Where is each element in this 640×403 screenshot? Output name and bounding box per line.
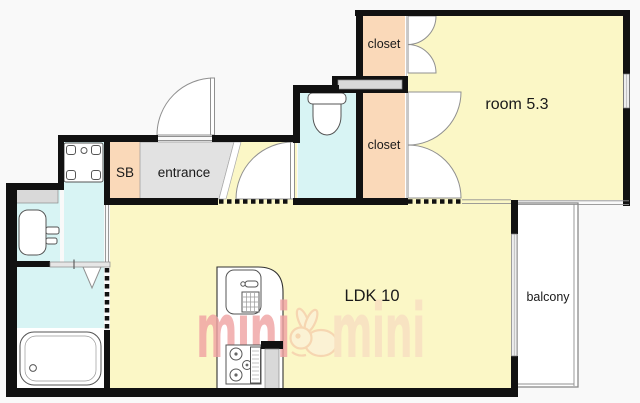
kitchen-partition-pillar — [265, 349, 279, 389]
floor-plan-canvas: mini mini — [0, 0, 640, 403]
bathtub-icon — [20, 332, 101, 385]
floor-plan: mini mini — [0, 0, 640, 403]
label-closet-bottom: closet — [368, 138, 401, 152]
stove-icon — [226, 345, 261, 384]
label-closet-top: closet — [368, 37, 401, 51]
kitchen-partition-wall — [261, 341, 283, 349]
label-ldk: LDK 10 — [344, 287, 399, 305]
label-shoe-box: SB — [116, 165, 134, 180]
label-room-53: room 5.3 — [485, 96, 548, 113]
kitchen-sink-icon — [226, 270, 261, 314]
label-entrance: entrance — [158, 165, 211, 180]
room-ldk-floor — [110, 200, 511, 390]
label-balcony: balcony — [526, 290, 570, 304]
washroom-counter — [16, 189, 58, 203]
washing-machine-icon — [64, 143, 103, 182]
